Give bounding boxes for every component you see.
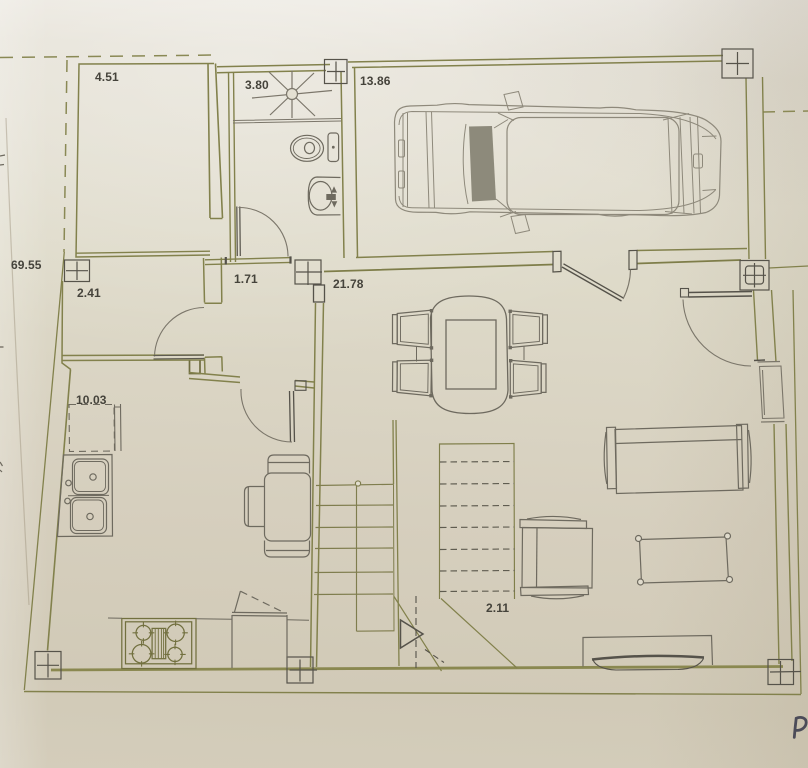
svg-text:13.86: 13.86 — [360, 74, 391, 88]
svg-text:10.03: 10.03 — [76, 393, 107, 407]
svg-text:3.80: 3.80 — [245, 78, 269, 92]
svg-text:2.41: 2.41 — [77, 286, 101, 300]
svg-text:1.71: 1.71 — [234, 272, 258, 286]
svg-text:4.51: 4.51 — [95, 70, 119, 84]
svg-text:21.78: 21.78 — [333, 277, 364, 291]
svg-text:2.11: 2.11 — [486, 601, 509, 615]
svg-text:69.55: 69.55 — [11, 258, 42, 272]
